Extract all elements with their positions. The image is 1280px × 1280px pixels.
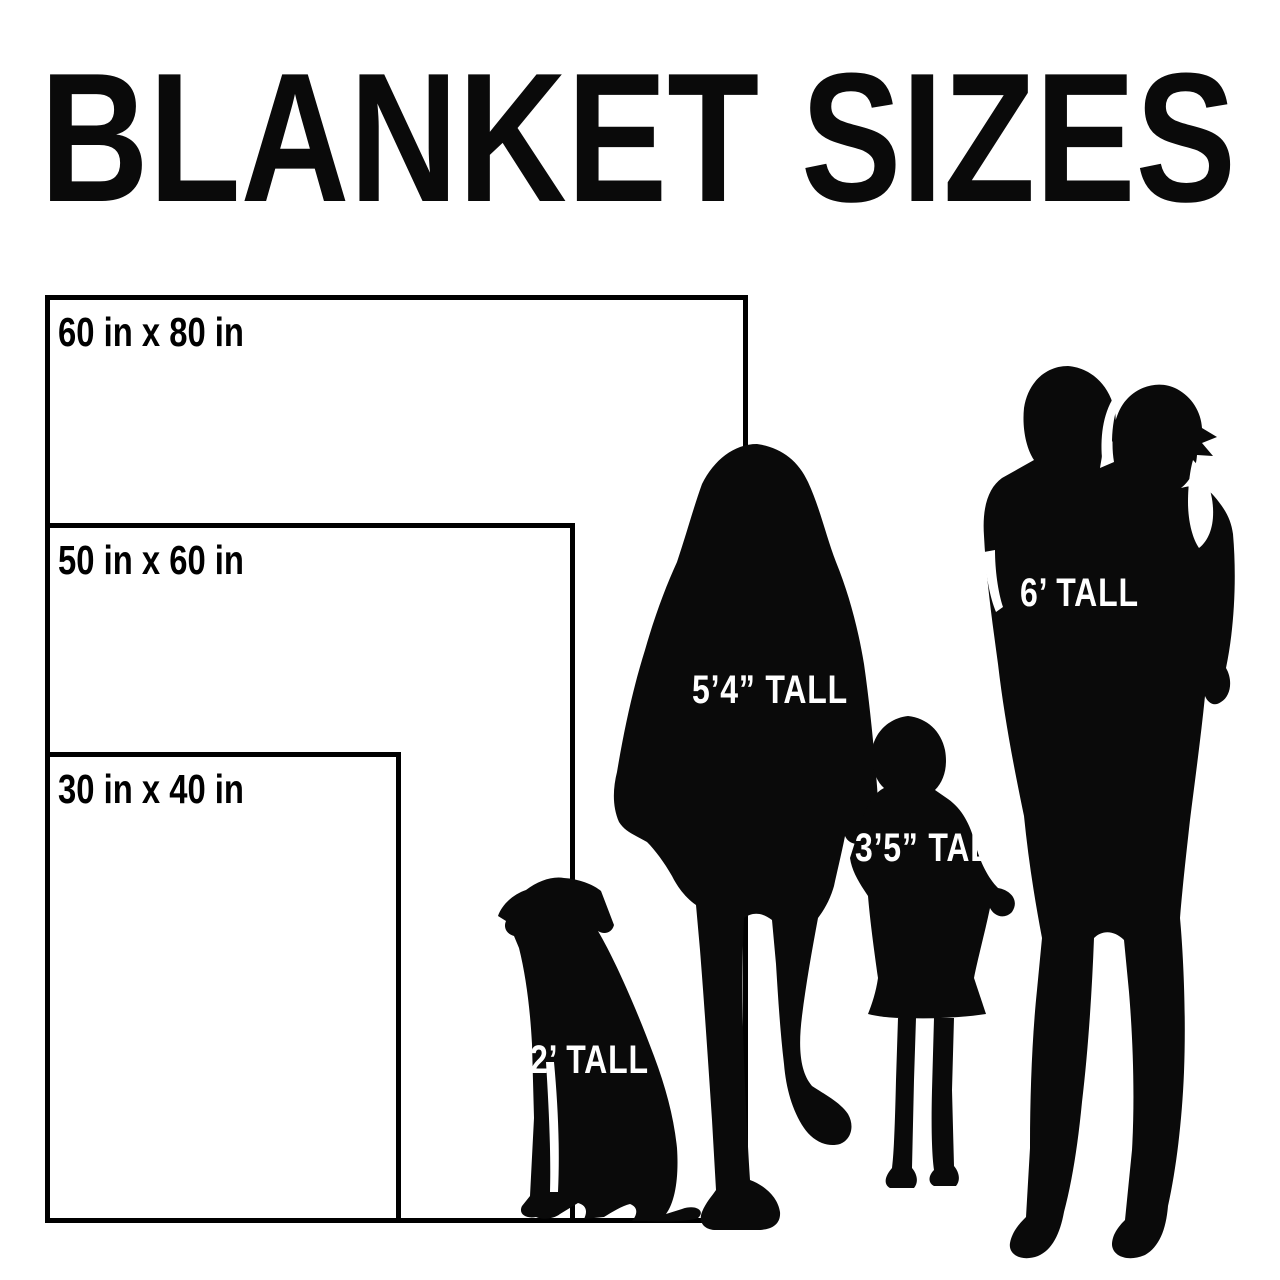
child-height-label: 3’5” TALL xyxy=(855,828,1011,868)
dog-height-label: 2’ TALL xyxy=(530,1040,649,1080)
child-right-leg xyxy=(930,1018,959,1186)
man-height-label: 6’ TALL xyxy=(1020,573,1139,613)
woman-height-label: 5’4” TALL xyxy=(692,670,848,710)
figures-layer xyxy=(0,0,1280,1280)
blanket-sizes-infographic: BLANKET SIZES 60 in x 80 in 50 in x 60 i… xyxy=(0,0,1280,1280)
child-left-leg xyxy=(886,1018,917,1188)
